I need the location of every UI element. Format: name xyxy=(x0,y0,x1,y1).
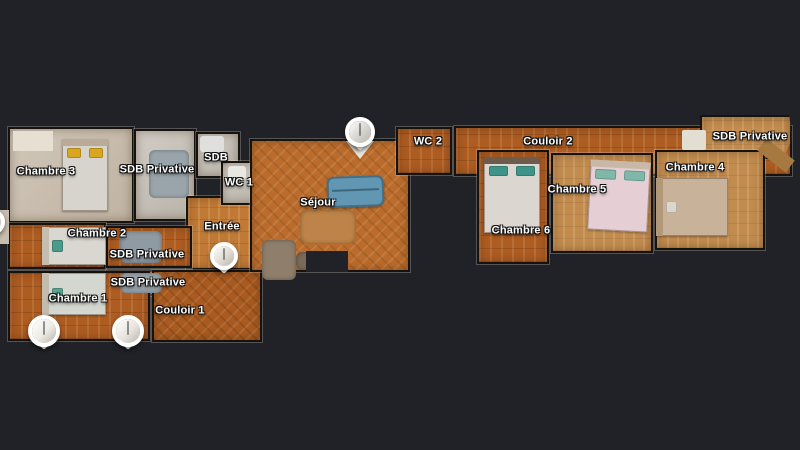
pillow xyxy=(624,170,645,181)
marker-disc xyxy=(0,209,5,235)
bed-headboard xyxy=(484,157,540,164)
bed-headboard xyxy=(62,139,108,146)
waypoint-edge[interactable] xyxy=(0,209,5,235)
waypoint-sejour[interactable] xyxy=(345,117,375,147)
room-wc-2[interactable] xyxy=(396,127,452,175)
rug xyxy=(300,210,356,244)
waypoint-chambre-1a[interactable] xyxy=(28,315,60,347)
bed-chambre-5 xyxy=(587,159,651,232)
shower xyxy=(149,150,189,198)
bed-headboard xyxy=(656,178,663,236)
wardrobe xyxy=(13,131,53,151)
pillow xyxy=(666,201,677,213)
shower xyxy=(120,273,162,293)
pillow xyxy=(89,148,103,158)
bed-headboard xyxy=(42,227,49,265)
floorplan-view: Chambre 3SDB PrivativeSDBEntréeWC 1Chamb… xyxy=(0,0,800,450)
bed-chambre-1 xyxy=(42,273,106,315)
marker-disc xyxy=(28,315,60,347)
toilet xyxy=(228,166,246,179)
waypoint-entree[interactable] xyxy=(210,242,238,270)
panorama-thumbnail xyxy=(32,319,56,343)
sink xyxy=(200,136,224,152)
pillow xyxy=(52,288,63,300)
shower xyxy=(682,130,706,150)
shower xyxy=(120,231,162,263)
panorama-thumbnail xyxy=(349,121,371,143)
waypoint-chambre-1b[interactable] xyxy=(112,315,144,347)
panorama-thumbnail xyxy=(214,246,234,266)
panorama-thumbnail xyxy=(0,213,1,231)
room-couloir-1[interactable] xyxy=(152,270,262,342)
sofa xyxy=(326,175,384,208)
pillow xyxy=(67,148,81,158)
wall-notch xyxy=(306,251,348,272)
pillow xyxy=(595,169,616,180)
bed-chambre-4 xyxy=(656,178,728,236)
bed-chambre-6 xyxy=(484,157,540,233)
furniture-blob xyxy=(262,240,296,280)
pillow xyxy=(516,166,535,176)
pillow xyxy=(52,240,63,252)
bed-chambre-2 xyxy=(42,227,106,265)
marker-disc xyxy=(210,242,238,270)
bed-chambre-3 xyxy=(62,139,108,211)
marker-disc xyxy=(345,117,375,147)
marker-disc xyxy=(112,315,144,347)
pillow xyxy=(489,166,508,176)
bed-headboard xyxy=(42,273,49,315)
panorama-thumbnail xyxy=(116,319,140,343)
